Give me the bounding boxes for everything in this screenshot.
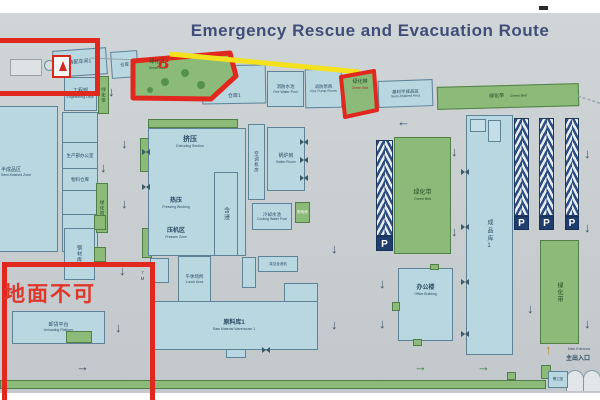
parking-chevron-strip: [514, 118, 529, 216]
green-patch: [94, 215, 106, 230]
building-label-block: 半成品区 Semi-finished Zone: [0, 167, 45, 177]
room: [242, 257, 256, 288]
building-label-en: Fire Pump Room: [310, 89, 337, 93]
building-base-material-area: 基材半成品区 Semi-finished Area: [378, 79, 434, 108]
room-label-en: Lunch Area: [186, 280, 204, 284]
building-label: 办公楼: [416, 285, 434, 292]
evac-arrow-left-icon: ←: [397, 115, 410, 128]
press-zone-label-block: 压机区 Presses Zone: [156, 228, 196, 239]
room-label: 热压: [170, 198, 182, 205]
door-marker-icon: [461, 169, 469, 175]
legend-item-box: [10, 59, 42, 76]
parking-sign: P: [565, 216, 579, 230]
building-label: 配电房: [297, 210, 308, 214]
gate-arch-icon: [566, 370, 584, 391]
door-marker-icon: [300, 157, 308, 163]
building-label-en: Semi-finished Area: [391, 94, 421, 99]
building-finished-warehouse: 成品库1: [466, 115, 513, 355]
door-marker-icon: [142, 184, 150, 190]
building-label: 仓库: [120, 62, 129, 68]
door-marker-icon: [142, 149, 150, 155]
building-store: 仓库: [110, 50, 139, 79]
green-belt-label: 绿化带: [413, 190, 431, 197]
evac-arrow-down-icon: ↓: [379, 317, 386, 330]
building-raw-material-warehouse: 原料库1 Raw Material Warehouse 1: [150, 301, 318, 350]
green-belt-top-right: 绿化带 Green Belt: [437, 83, 580, 110]
hot-press-label-block: 热压 Pressing Working: [158, 198, 194, 209]
gate-arch-icon: [583, 370, 600, 391]
building-label: 仓库1: [228, 94, 241, 100]
door-marker-icon: [300, 139, 308, 145]
evac-arrow-down-icon: ↓: [451, 225, 458, 238]
green-belt-label: 绿化带: [99, 77, 108, 113]
building-office: 办公楼 Office Building: [398, 268, 453, 341]
building-label-en: Office Building: [414, 292, 437, 296]
green-belt-label: 绿化带: [489, 94, 504, 100]
room: [63, 113, 97, 143]
evac-arrow-down-icon: ↓: [115, 321, 122, 334]
evac-arrow-down-icon: ↓: [584, 147, 591, 160]
building-guard-room: 警卫室: [548, 371, 568, 388]
green-belt-bottom-right: 绿化带: [540, 240, 579, 344]
extrusion-label-block: 挤压 Extruding Section: [166, 136, 214, 148]
room: [488, 120, 501, 142]
office-label-block: 办公楼 Office Building: [399, 285, 452, 296]
room-label: 含浸: [215, 173, 237, 255]
green-belt-label-en: Green Belt: [510, 94, 527, 98]
parking-sign: P: [514, 216, 529, 230]
parking-sign: P: [539, 216, 554, 230]
evac-arrow-down-icon: ↓: [527, 302, 534, 315]
green-belt-label-en: Green Belt: [414, 197, 431, 201]
building-cooling-pool: 冷却水池 Cooling Water Pool: [252, 203, 292, 230]
evac-arrow-down-icon: ↓: [379, 277, 386, 290]
building-power-room: 配电房: [295, 202, 310, 223]
room-label-en: Presses Zone: [165, 235, 187, 239]
map-title: Emergency Rescue and Evacuation Route: [150, 21, 590, 41]
green-patch: [507, 372, 516, 380]
green-belt-label: 绿化带: [541, 241, 578, 343]
photo-corner-mark: [539, 6, 548, 10]
marker-triangle-icon: [59, 61, 67, 71]
building-label: 成品库1: [467, 116, 512, 354]
room-label-en: Pressing Working: [162, 205, 189, 209]
room-label: 真空含浸机: [269, 262, 287, 266]
evac-arrow-down-icon: ↓: [121, 197, 128, 210]
door-marker-icon: [461, 224, 469, 230]
evac-arrow-up-icon: ↑: [545, 343, 552, 356]
building-semi-finished-area: 半成品区 Semi-finished Zone: [0, 106, 58, 252]
evac-arrow-down-icon: ↓: [121, 137, 128, 150]
parking-chevron-strip: [565, 118, 579, 216]
building-fire-pump-room: 消防泵房 Fire Pump Room: [305, 69, 343, 109]
green-patch: [94, 247, 106, 262]
you-are-here-marker: [52, 55, 71, 78]
evacuation-map-photo: Emergency Rescue and Evacuation Route 装配…: [0, 0, 600, 400]
entrance-label-en: Main Entrance: [556, 347, 600, 351]
parking-chevron-strip: [539, 118, 554, 216]
room: [63, 191, 97, 215]
room-label: 压机区: [167, 228, 185, 235]
building-label: 警卫室: [553, 377, 564, 381]
room-material-store: 物料仓库: [63, 169, 97, 191]
green-patch: [413, 339, 422, 346]
room-impregnation-corridor: 含浸: [214, 172, 238, 256]
green-belt-strip: [148, 119, 238, 128]
legend-box: [0, 38, 100, 96]
room-label: 挤压: [183, 136, 197, 144]
evac-arrow-down-icon: ↓: [100, 161, 107, 174]
entrance-label: 主出入口: [554, 353, 600, 362]
building-fire-water-pool: 消防水池 Fire Water Pool: [267, 71, 304, 107]
building-label-en: Raw Material Warehouse 1: [213, 327, 255, 331]
green-patch: [392, 302, 400, 311]
room-label-en: Extruding Section: [176, 144, 203, 148]
building-label-en: Semi-finished Zone: [1, 173, 45, 177]
evac-arrow-down-icon: ↓: [451, 145, 458, 158]
parking-chevron-strip: [376, 140, 393, 236]
door-marker-icon: [262, 347, 270, 353]
evac-arrow-right-icon: →: [414, 360, 427, 373]
room-vacuum-machine: 真空含浸机: [258, 256, 298, 272]
door-marker-icon: [300, 175, 308, 181]
evac-arrow-down-icon: ↓: [108, 85, 115, 98]
evac-arrow-down-icon: ↓: [331, 318, 338, 331]
building-label: 原料库1: [223, 320, 244, 327]
evac-arrow-right-icon: →: [76, 360, 89, 373]
green-patch: [430, 264, 439, 270]
building-warehouse-1: 仓库1: [202, 64, 267, 104]
evac-arrow-down-icon: ↓: [584, 221, 591, 234]
evac-arrow-down-icon: ↓: [119, 264, 126, 277]
room-label: 生产部办公室: [67, 153, 94, 158]
room-production-office: 生产部办公室: [63, 143, 97, 169]
parking-sign: P: [376, 236, 393, 251]
building-label-en: Fire Water Pool: [273, 90, 297, 94]
building-label-en: Cooling Water Pool: [257, 217, 287, 221]
green-belt-large: 绿化带 Green Belt: [394, 137, 451, 254]
room-ac-room: 空调机房: [248, 124, 265, 200]
evac-arrow-right-icon: →: [477, 360, 490, 373]
room: [470, 119, 486, 132]
building-annex: [226, 349, 246, 358]
room-label: 空调机房: [249, 125, 264, 199]
evac-arrow-down-icon: ↓: [584, 317, 591, 330]
door-marker-icon: [461, 279, 469, 285]
door-marker-icon: [461, 331, 469, 337]
evac-arrow-down-icon: ↓: [331, 242, 338, 255]
handwritten-annotation: 地面不可: [4, 278, 96, 308]
building-label-en: Boiler Room: [276, 160, 295, 164]
room-label: 物料仓库: [71, 177, 89, 182]
green-belt-label-en: Green Belt: [352, 86, 369, 90]
zone-b-label-block: 绿化带 Green Belt: [343, 80, 377, 90]
room-lunch-area: 午休场所 Lunch Area: [178, 256, 211, 302]
